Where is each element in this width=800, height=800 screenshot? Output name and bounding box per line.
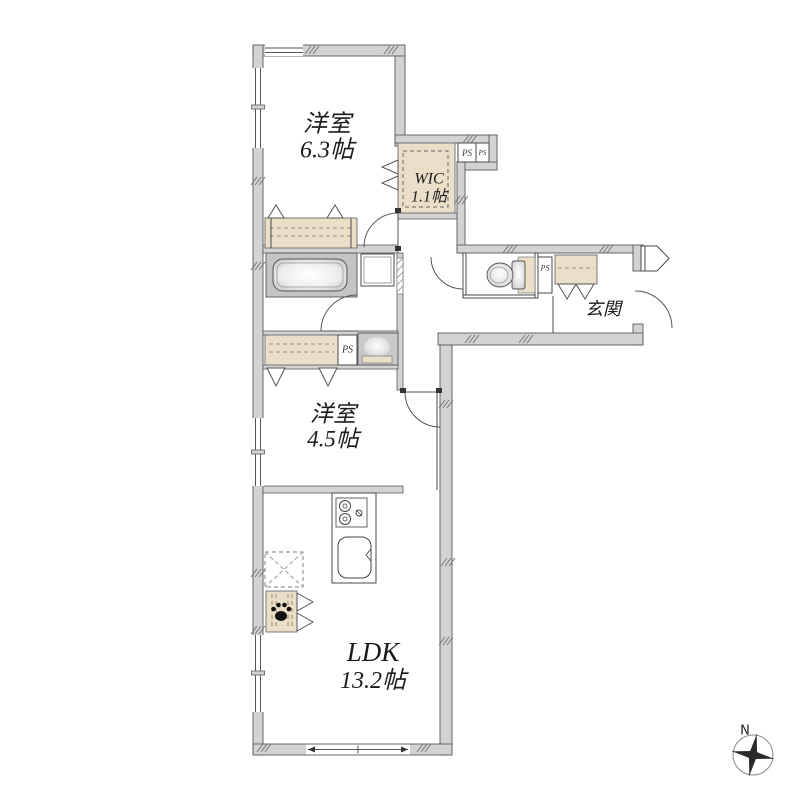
room-label-bedroom-top: 洋室 6.3帖 bbox=[300, 112, 354, 165]
closet-bedroom-top bbox=[265, 205, 357, 248]
room-label-wic: WIC 1.1帖 bbox=[411, 170, 447, 205]
shoe-cabinet bbox=[555, 255, 597, 299]
room-label-bedroom-mid: 洋室 4.5帖 bbox=[307, 402, 359, 453]
kitchen-counter bbox=[332, 493, 376, 583]
door-bathroom bbox=[321, 295, 357, 331]
ps-label-wic-2: PS bbox=[479, 149, 487, 157]
compass-rose bbox=[729, 731, 778, 780]
room-label-entrance: 玄関 bbox=[585, 300, 621, 320]
pipe-space-toilet bbox=[538, 257, 552, 293]
room-label-ldk: LDK 13.2帖 bbox=[340, 638, 406, 694]
ps-label-wic-1: PS bbox=[462, 148, 472, 158]
ps-label-washroom: PS bbox=[342, 345, 353, 356]
door-bedroom-top bbox=[364, 208, 401, 251]
bathtub bbox=[273, 259, 347, 291]
floorplan-page: 洋室 6.3帖 WIC 1.1帖 玄関 洋室 4.5帖 LDK 13.2帖 PS… bbox=[0, 0, 800, 800]
toilet bbox=[487, 257, 535, 293]
door-bedroom-mid bbox=[400, 388, 442, 427]
compass-north-label: N bbox=[740, 724, 750, 739]
washbasin bbox=[358, 333, 398, 365]
closet-bedroom-mid bbox=[265, 335, 338, 386]
washing-machine-pan bbox=[361, 254, 394, 286]
kitchen-sink bbox=[338, 537, 371, 578]
ps-label-toilet: PS bbox=[541, 264, 550, 273]
kitchen-stove bbox=[336, 498, 367, 527]
door-toilet bbox=[431, 257, 463, 289]
sliding-door bbox=[397, 258, 403, 294]
pet-space bbox=[266, 591, 313, 632]
bathroom bbox=[266, 253, 357, 297]
entrance-door bbox=[635, 246, 672, 328]
refrigerator-space bbox=[265, 552, 303, 587]
